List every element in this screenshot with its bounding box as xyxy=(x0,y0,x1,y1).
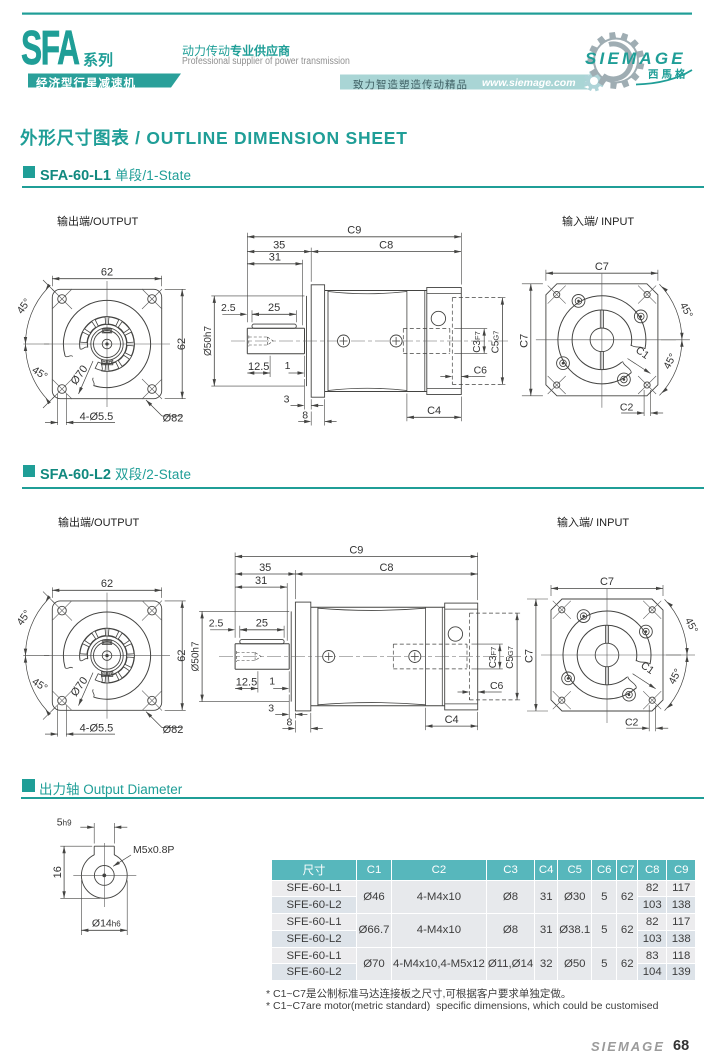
svg-text:2.5: 2.5 xyxy=(221,302,236,314)
svg-text:31: 31 xyxy=(269,252,281,264)
svg-text:Ø70: Ø70 xyxy=(69,675,91,699)
svg-text:C8: C8 xyxy=(379,562,393,574)
svg-text:8: 8 xyxy=(302,410,308,422)
svg-text:62: 62 xyxy=(176,649,188,661)
svg-text:C5G7: C5G7 xyxy=(505,646,516,669)
svg-text:4-Ø5.5: 4-Ø5.5 xyxy=(80,723,114,735)
svg-text:25: 25 xyxy=(256,618,268,630)
svg-text:45°: 45° xyxy=(15,608,34,628)
svg-text:5h9: 5h9 xyxy=(57,817,72,829)
svg-text:31: 31 xyxy=(255,575,267,587)
svg-text:45°: 45° xyxy=(677,301,695,321)
svg-text:C7: C7 xyxy=(524,649,536,663)
svg-text:C7: C7 xyxy=(595,261,609,273)
svg-text:M5x0.8P: M5x0.8P xyxy=(133,844,174,856)
svg-text:62: 62 xyxy=(101,266,113,278)
svg-text:C3F7: C3F7 xyxy=(488,647,499,669)
svg-text:C9: C9 xyxy=(347,225,361,237)
svg-text:C6: C6 xyxy=(474,365,488,377)
svg-text:16: 16 xyxy=(52,866,64,878)
svg-text:62: 62 xyxy=(176,338,188,350)
svg-text:3: 3 xyxy=(284,394,290,406)
svg-text:Ø82: Ø82 xyxy=(163,724,184,736)
svg-text:Ø50h7: Ø50h7 xyxy=(191,641,202,671)
svg-text:62: 62 xyxy=(101,578,113,590)
svg-text:Ø50h7: Ø50h7 xyxy=(203,326,214,356)
svg-text:35: 35 xyxy=(273,239,285,251)
svg-text:1: 1 xyxy=(269,675,275,687)
svg-text:C2: C2 xyxy=(625,717,639,729)
svg-text:C3F7: C3F7 xyxy=(472,331,483,353)
svg-text:1: 1 xyxy=(285,360,291,372)
svg-text:C5G7: C5G7 xyxy=(490,331,501,354)
svg-text:Ø82: Ø82 xyxy=(163,413,184,425)
svg-text:C4: C4 xyxy=(427,405,441,417)
svg-text:45°: 45° xyxy=(682,616,700,636)
svg-text:Ø70: Ø70 xyxy=(69,363,91,387)
svg-text:C4: C4 xyxy=(445,714,459,726)
svg-text:45°: 45° xyxy=(30,364,50,383)
svg-text:45°: 45° xyxy=(15,296,34,316)
svg-text:Ø14h6: Ø14h6 xyxy=(92,918,121,930)
svg-text:12.5: 12.5 xyxy=(248,361,269,373)
svg-text:4-Ø5.5: 4-Ø5.5 xyxy=(80,411,114,423)
svg-text:C6: C6 xyxy=(490,680,504,692)
svg-text:C8: C8 xyxy=(379,239,393,251)
svg-text:C2: C2 xyxy=(620,402,634,414)
svg-text:45°: 45° xyxy=(30,676,50,695)
svg-text:C7: C7 xyxy=(518,334,530,348)
svg-text:C9: C9 xyxy=(349,544,363,556)
svg-text:2.5: 2.5 xyxy=(209,618,224,630)
svg-text:3: 3 xyxy=(268,702,274,714)
svg-text:35: 35 xyxy=(259,562,271,574)
svg-text:25: 25 xyxy=(268,302,280,314)
svg-text:12.5: 12.5 xyxy=(236,676,257,688)
svg-text:8: 8 xyxy=(286,717,292,729)
svg-text:C7: C7 xyxy=(600,576,614,588)
